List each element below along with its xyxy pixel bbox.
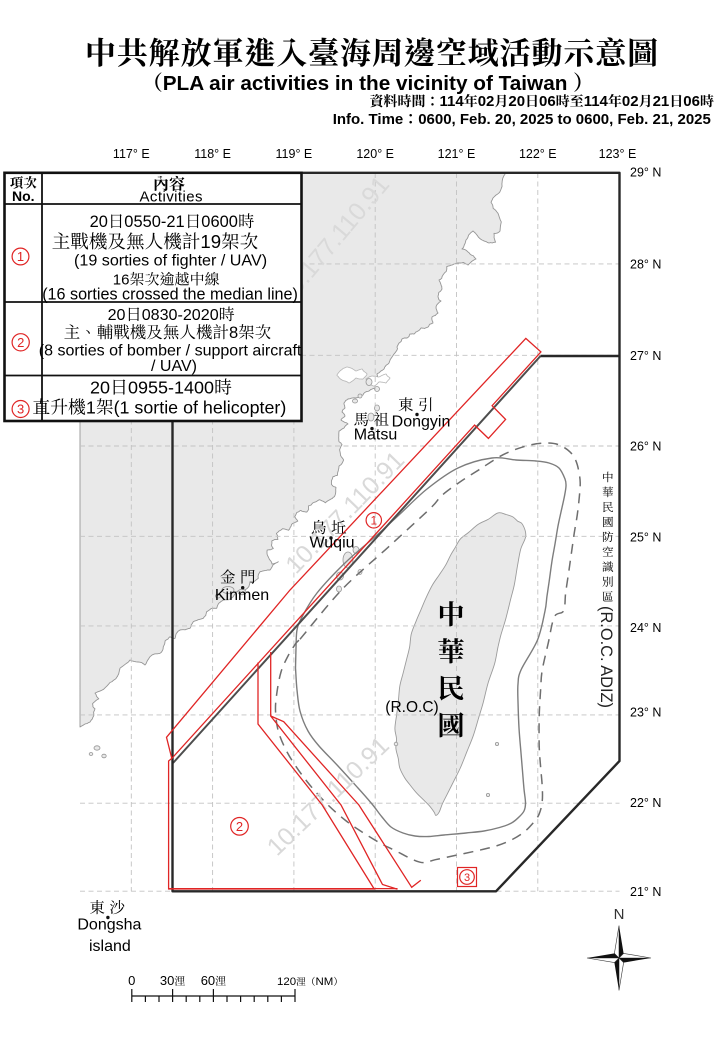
svg-text:06: 06: [683, 93, 700, 110]
svg-text:2: 2: [236, 819, 243, 834]
svg-text:114: 114: [440, 93, 465, 110]
svg-text:0830-2020: 0830-2020: [142, 306, 219, 324]
svg-text:19: 19: [200, 231, 221, 252]
svg-text:30: 30: [160, 973, 174, 988]
svg-text:20: 20: [108, 306, 126, 324]
svg-text:28° N: 28° N: [630, 258, 661, 272]
svg-text:N: N: [614, 906, 625, 923]
svg-text:8: 8: [229, 323, 238, 342]
svg-text:21° N: 21° N: [630, 885, 661, 899]
svg-text:3: 3: [464, 872, 470, 884]
svg-text:119° E: 119° E: [276, 147, 313, 161]
svg-text:Activities: Activities: [140, 189, 203, 206]
svg-text:121° E: 121° E: [438, 147, 476, 161]
svg-text:122° E: 122° E: [519, 147, 557, 161]
svg-text:Info. Time: Info. Time: [333, 111, 404, 128]
svg-text:120° E: 120° E: [356, 147, 394, 161]
svg-text:Dongsha: Dongsha: [77, 917, 141, 934]
svg-text:2: 2: [17, 335, 24, 350]
svg-text:Dongyin: Dongyin: [392, 414, 451, 431]
svg-text:60: 60: [201, 973, 215, 988]
svg-text:(19 sorties of fighter / UAV): (19 sorties of fighter / UAV): [74, 252, 267, 270]
svg-text:(16 sorties crossed the median: (16 sorties crossed the median line): [42, 286, 298, 304]
svg-text:1: 1: [370, 513, 377, 527]
svg-text:21: 21: [653, 93, 670, 110]
svg-text:PLA air activities in the vici: PLA air activities in the vicinity of Ta…: [163, 72, 568, 95]
svg-text:(R.O.C. ADIZ): (R.O.C. ADIZ): [597, 606, 615, 708]
svg-text:3: 3: [17, 401, 24, 416]
svg-text:0550-21: 0550-21: [124, 213, 184, 231]
svg-text:NM: NM: [316, 976, 334, 988]
svg-text:27° N: 27° N: [630, 349, 661, 363]
svg-text:24° N: 24° N: [630, 621, 661, 635]
svg-text:02: 02: [478, 93, 495, 110]
svg-text:25° N: 25° N: [630, 531, 661, 545]
svg-text:20: 20: [90, 378, 110, 398]
svg-text:20: 20: [90, 213, 108, 231]
svg-text:1: 1: [17, 249, 24, 264]
svg-text:29° N: 29° N: [630, 166, 661, 180]
svg-text:1: 1: [86, 397, 96, 417]
svg-text:Matsu: Matsu: [354, 427, 398, 444]
svg-text:0: 0: [128, 973, 135, 988]
svg-text:(R.O.C): (R.O.C): [385, 699, 438, 716]
svg-text:20: 20: [508, 93, 525, 110]
svg-text:02: 02: [622, 93, 639, 110]
svg-text:0955-1400: 0955-1400: [128, 378, 214, 398]
svg-text:23° N: 23° N: [630, 706, 661, 720]
svg-text:26° N: 26° N: [630, 440, 661, 454]
svg-text:117° E: 117° E: [113, 147, 150, 161]
svg-text:0600: 0600: [201, 213, 238, 231]
svg-text:120: 120: [277, 976, 296, 988]
svg-text:Kinmen: Kinmen: [215, 587, 269, 604]
svg-text:123° E: 123° E: [599, 147, 637, 161]
svg-text:114: 114: [584, 93, 609, 110]
svg-text:118° E: 118° E: [194, 147, 231, 161]
svg-text:0600, Feb. 20, 2025 to 0600, F: 0600, Feb. 20, 2025 to 0600, Feb. 21, 20…: [418, 111, 711, 128]
svg-text:No.: No.: [12, 188, 35, 204]
svg-text:(1 sortie of helicopter): (1 sortie of helicopter): [114, 397, 287, 417]
svg-text:island: island: [89, 938, 131, 955]
svg-text:22° N: 22° N: [630, 796, 661, 810]
svg-text:/ UAV): / UAV): [151, 357, 197, 375]
svg-text:06: 06: [539, 93, 556, 110]
